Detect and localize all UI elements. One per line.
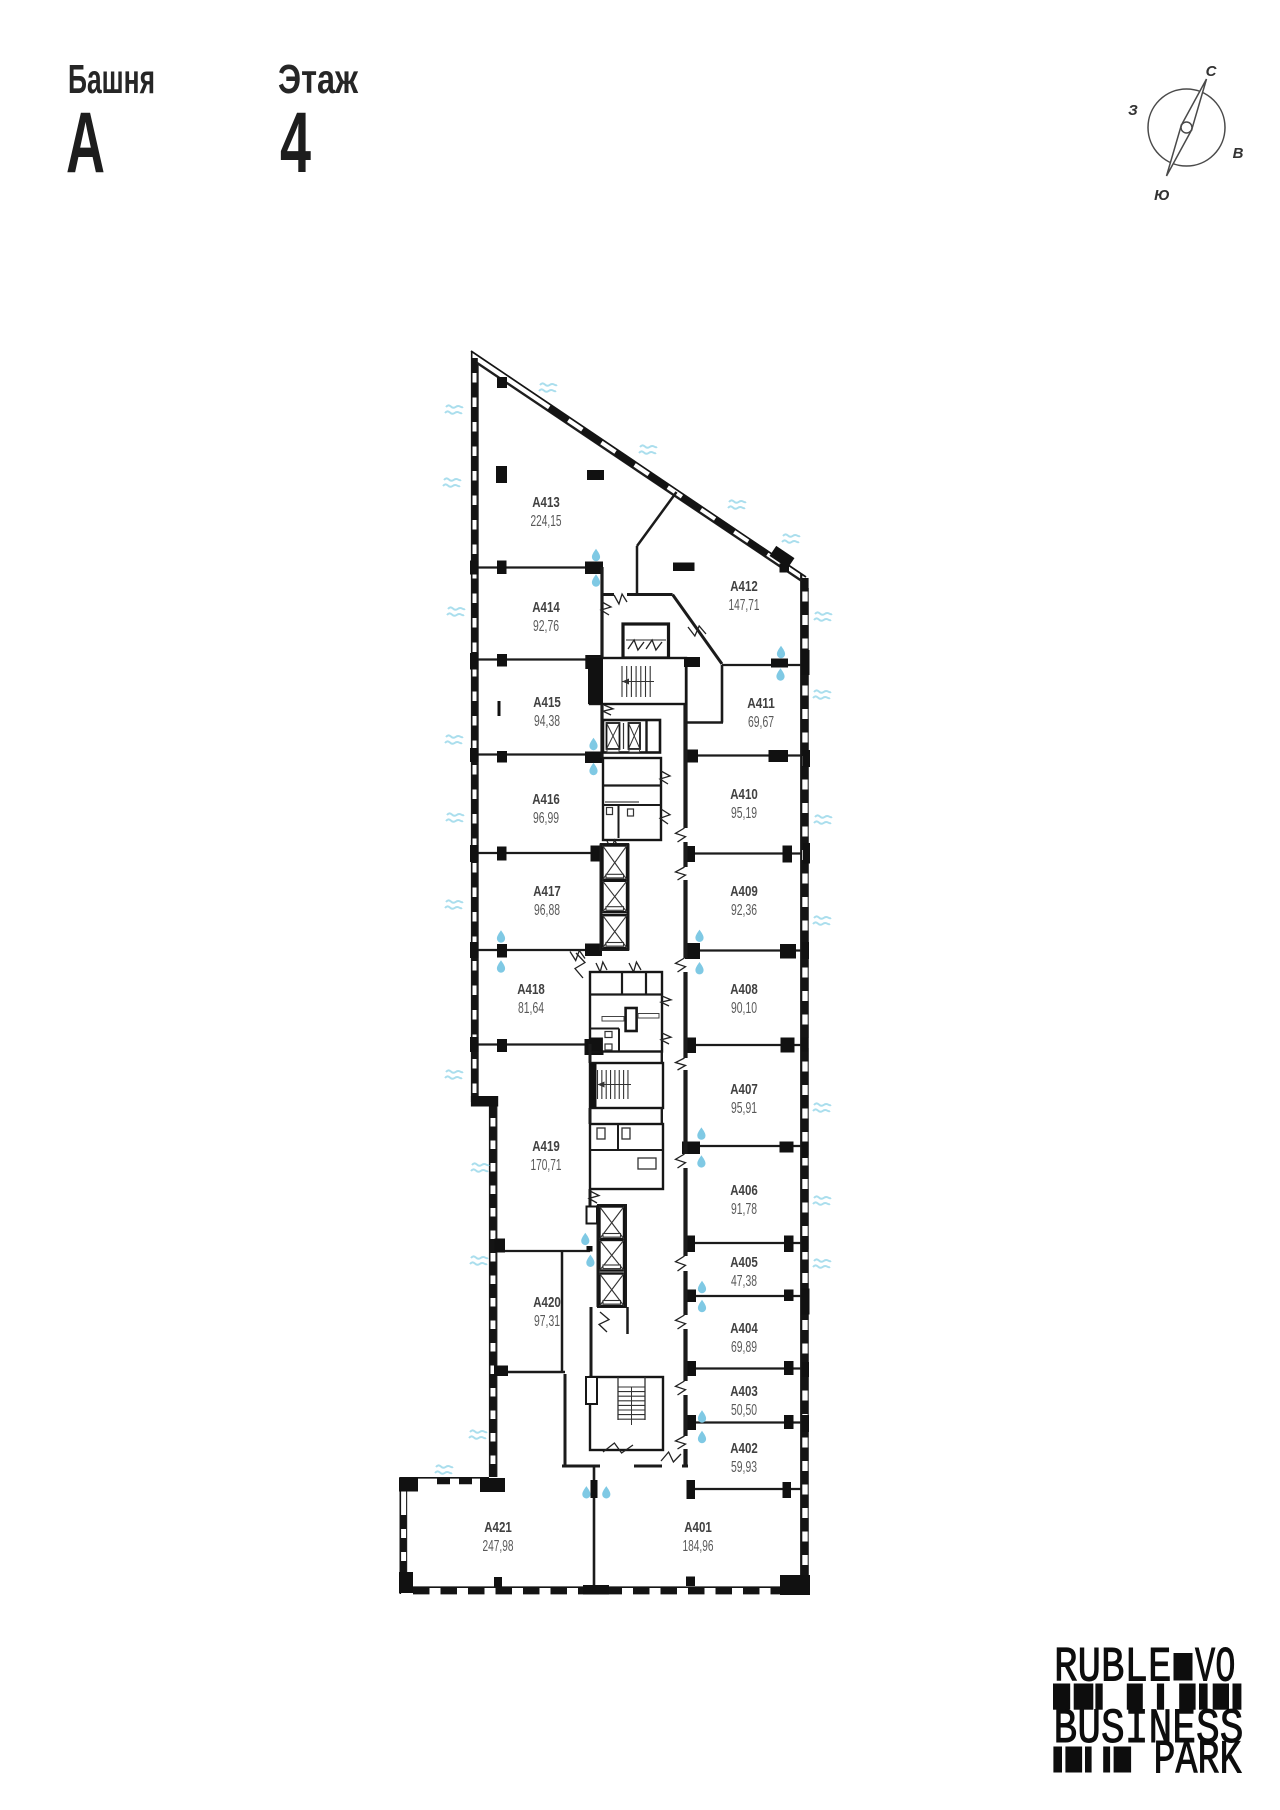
svg-text:А407: А407 bbox=[730, 1082, 758, 1098]
svg-text:91,78: 91,78 bbox=[731, 1201, 757, 1218]
svg-text:97,31: 97,31 bbox=[534, 1313, 560, 1330]
svg-text:А421: А421 bbox=[484, 1520, 512, 1536]
svg-text:PARK: PARK bbox=[1154, 1735, 1243, 1788]
svg-text:69,89: 69,89 bbox=[731, 1339, 757, 1356]
svg-text:А412: А412 bbox=[730, 579, 758, 595]
svg-text:А404: А404 bbox=[730, 1321, 758, 1337]
svg-text:4: 4 bbox=[280, 95, 311, 191]
svg-text:А403: А403 bbox=[730, 1384, 758, 1400]
svg-text:А402: А402 bbox=[730, 1441, 758, 1457]
svg-text:С: С bbox=[1206, 63, 1218, 80]
svg-text:96,99: 96,99 bbox=[533, 810, 559, 827]
svg-text:З: З bbox=[1128, 102, 1138, 119]
svg-text:96,88: 96,88 bbox=[534, 902, 560, 919]
svg-text:184,96: 184,96 bbox=[683, 1538, 714, 1555]
svg-text:94,38: 94,38 bbox=[534, 713, 560, 730]
svg-text:224,15: 224,15 bbox=[531, 513, 562, 530]
svg-text:А417: А417 bbox=[533, 884, 561, 900]
svg-text:92,76: 92,76 bbox=[533, 618, 559, 635]
svg-text:А411: А411 bbox=[747, 696, 775, 712]
svg-text:А410: А410 bbox=[730, 787, 758, 803]
svg-text:А: А bbox=[66, 95, 105, 191]
svg-text:А420: А420 bbox=[533, 1295, 561, 1311]
svg-text:А418: А418 bbox=[517, 982, 545, 998]
svg-text:247,98: 247,98 bbox=[483, 1538, 514, 1555]
svg-text:А414: А414 bbox=[532, 600, 560, 616]
svg-text:А419: А419 bbox=[532, 1139, 560, 1155]
svg-text:А408: А408 bbox=[730, 982, 758, 998]
svg-text:95,19: 95,19 bbox=[731, 805, 757, 822]
svg-text:47,38: 47,38 bbox=[731, 1273, 757, 1290]
svg-text:В: В bbox=[1233, 145, 1244, 162]
svg-text:А409: А409 bbox=[730, 884, 758, 900]
svg-text:А415: А415 bbox=[533, 695, 561, 711]
svg-text:А401: А401 bbox=[684, 1520, 712, 1536]
svg-text:170,71: 170,71 bbox=[531, 1157, 562, 1174]
svg-text:А413: А413 bbox=[532, 495, 560, 511]
svg-text:А405: А405 bbox=[730, 1255, 758, 1271]
svg-text:RUBLE: RUBLE bbox=[1054, 1640, 1172, 1696]
svg-text:59,93: 59,93 bbox=[731, 1459, 757, 1476]
svg-text:А416: А416 bbox=[532, 792, 560, 808]
svg-text:Ю: Ю bbox=[1154, 187, 1170, 204]
svg-text:81,64: 81,64 bbox=[518, 1000, 544, 1017]
svg-text:50,50: 50,50 bbox=[731, 1402, 757, 1419]
svg-text:90,10: 90,10 bbox=[731, 1000, 757, 1017]
svg-text:95,91: 95,91 bbox=[731, 1100, 757, 1117]
svg-text:147,71: 147,71 bbox=[729, 597, 760, 614]
svg-text:69,67: 69,67 bbox=[748, 714, 774, 731]
svg-text:А406: А406 bbox=[730, 1183, 758, 1199]
svg-text:92,36: 92,36 bbox=[731, 902, 757, 919]
